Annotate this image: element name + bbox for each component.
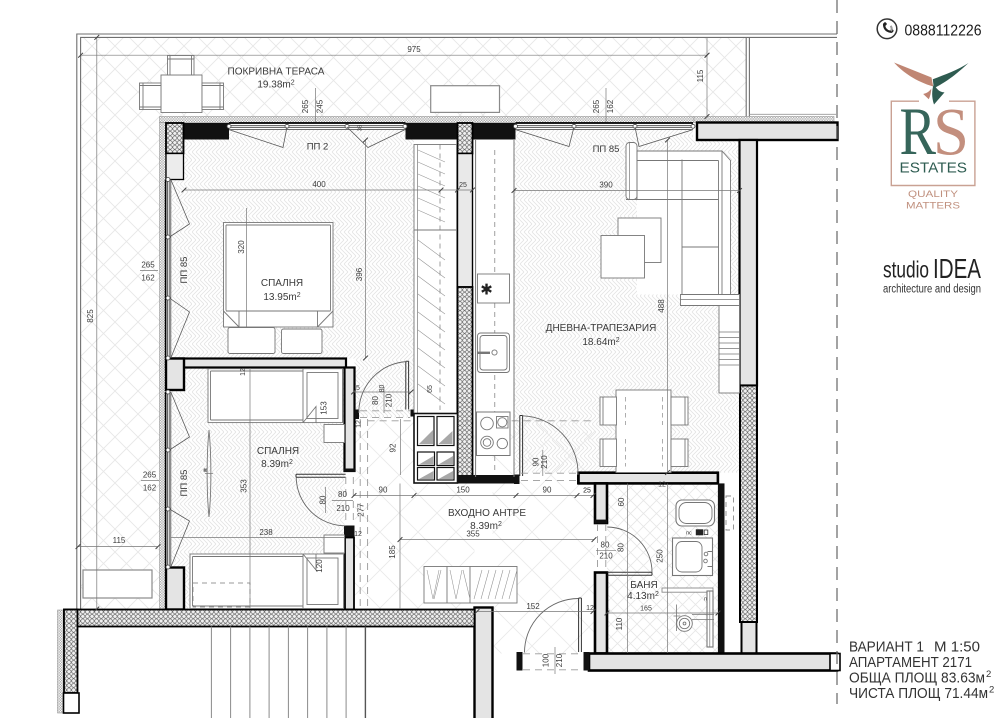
svg-text:8.39m2: 8.39m2	[261, 459, 293, 470]
svg-text:60: 60	[617, 497, 626, 506]
svg-text:250: 250	[656, 549, 665, 563]
svg-text:488: 488	[657, 299, 666, 313]
svg-text:115: 115	[113, 536, 126, 545]
svg-text:92: 92	[389, 443, 398, 452]
svg-text:36: 36	[358, 125, 364, 131]
svg-text:80: 80	[319, 495, 328, 504]
svg-text:80: 80	[371, 396, 380, 405]
svg-text:265: 265	[592, 99, 601, 113]
svg-text:90: 90	[543, 486, 552, 495]
svg-text:ПОКРИВНА ТЕРАСА: ПОКРИВНА ТЕРАСА	[228, 67, 325, 78]
svg-text:353: 353	[240, 479, 249, 493]
svg-text:ПП 85: ПП 85	[179, 470, 190, 497]
svg-text:М 1:50: М 1:50	[934, 640, 980, 656]
svg-text:65: 65	[427, 385, 434, 393]
svg-text:265: 265	[143, 471, 157, 480]
svg-text:12: 12	[586, 605, 594, 612]
svg-text:19.38m2: 19.38m2	[257, 80, 294, 91]
svg-text:162: 162	[141, 274, 155, 283]
svg-text:210: 210	[336, 504, 350, 513]
svg-text:162: 162	[143, 484, 157, 493]
svg-text:162: 162	[606, 99, 615, 113]
svg-text:25: 25	[459, 182, 467, 189]
svg-text:ВХОДНО АНТРЕ: ВХОДНО АНТРЕ	[448, 508, 526, 519]
svg-text:277: 277	[357, 503, 366, 517]
svg-text:265: 265	[141, 261, 155, 270]
svg-text:12: 12	[658, 482, 666, 489]
svg-text:ДНЕВНА-ТРАПЕЗАРИЯ: ДНЕВНА-ТРАПЕЗАРИЯ	[546, 323, 657, 334]
svg-text:825: 825	[86, 309, 95, 323]
svg-text:320: 320	[237, 240, 246, 254]
svg-text:ПП 2: ПП 2	[307, 142, 329, 153]
svg-text:25: 25	[583, 488, 591, 495]
svg-text:18.64m2: 18.64m2	[582, 337, 619, 348]
svg-text:СПАЛНЯ: СПАЛНЯ	[257, 446, 299, 457]
svg-text:studio: studio	[883, 257, 929, 283]
svg-text:150: 150	[456, 486, 470, 495]
svg-text:ЧИСТА ПЛОЩ 71.44м: ЧИСТА ПЛОЩ 71.44м	[849, 686, 988, 702]
svg-text:12: 12	[354, 531, 362, 538]
svg-text:пс: пс	[686, 531, 692, 537]
svg-text:ПП 85: ПП 85	[179, 257, 190, 284]
svg-text:0888112226: 0888112226	[905, 23, 982, 40]
svg-text:265: 265	[301, 99, 310, 113]
svg-text:400: 400	[312, 180, 326, 189]
svg-text:4.13m2: 4.13m2	[627, 591, 659, 602]
svg-text:✱: ✱	[480, 282, 493, 299]
svg-text:152: 152	[526, 602, 540, 611]
svg-text:975: 975	[407, 45, 421, 54]
svg-text:90: 90	[379, 486, 388, 495]
svg-text:210: 210	[540, 455, 549, 469]
svg-text:5: 5	[356, 385, 360, 392]
svg-text:390: 390	[599, 181, 613, 190]
svg-text:R: R	[900, 93, 937, 169]
svg-text:185: 185	[388, 545, 397, 559]
svg-text:115: 115	[696, 69, 705, 82]
svg-text:IDEA: IDEA	[933, 253, 981, 284]
svg-text:238: 238	[259, 528, 273, 537]
svg-text:MATTERS: MATTERS	[906, 201, 960, 211]
svg-text:2: 2	[989, 685, 994, 696]
svg-text:8.39m2: 8.39m2	[470, 521, 502, 532]
svg-text:S: S	[933, 94, 969, 170]
svg-text:210: 210	[555, 653, 564, 667]
svg-text:153: 153	[320, 401, 329, 415]
svg-text:80: 80	[338, 490, 347, 499]
svg-text:80: 80	[379, 385, 386, 393]
svg-text:БАНЯ: БАНЯ	[630, 580, 657, 591]
svg-text:120: 120	[315, 559, 324, 573]
svg-text:12: 12	[240, 368, 247, 376]
svg-text:396: 396	[355, 267, 364, 281]
svg-text:АПАРТАМЕНТ 2171: АПАРТАМЕНТ 2171	[849, 655, 972, 671]
svg-text:ВАРИАНТ 1: ВАРИАНТ 1	[849, 640, 924, 656]
svg-text:245: 245	[316, 99, 325, 113]
svg-text:165: 165	[640, 606, 652, 613]
svg-text:СПАЛНЯ: СПАЛНЯ	[261, 278, 303, 289]
svg-text:80: 80	[601, 541, 610, 550]
svg-text:architecture and design: architecture and design	[883, 284, 981, 296]
svg-text:ПП 85: ПП 85	[593, 144, 620, 155]
svg-text:210: 210	[599, 552, 613, 561]
svg-text:100: 100	[542, 653, 551, 667]
svg-text:13.95m2: 13.95m2	[263, 292, 300, 303]
svg-text:ОБЩА ПЛОЩ 83.63м: ОБЩА ПЛОЩ 83.63м	[849, 671, 985, 687]
svg-text:QUALITY: QUALITY	[908, 189, 958, 199]
svg-text:210: 210	[385, 393, 394, 407]
svg-text:110: 110	[615, 617, 624, 630]
svg-text:12: 12	[356, 420, 363, 428]
svg-text:ESTATES: ESTATES	[900, 160, 968, 177]
svg-text:2: 2	[986, 669, 991, 680]
svg-text:80: 80	[617, 543, 626, 552]
